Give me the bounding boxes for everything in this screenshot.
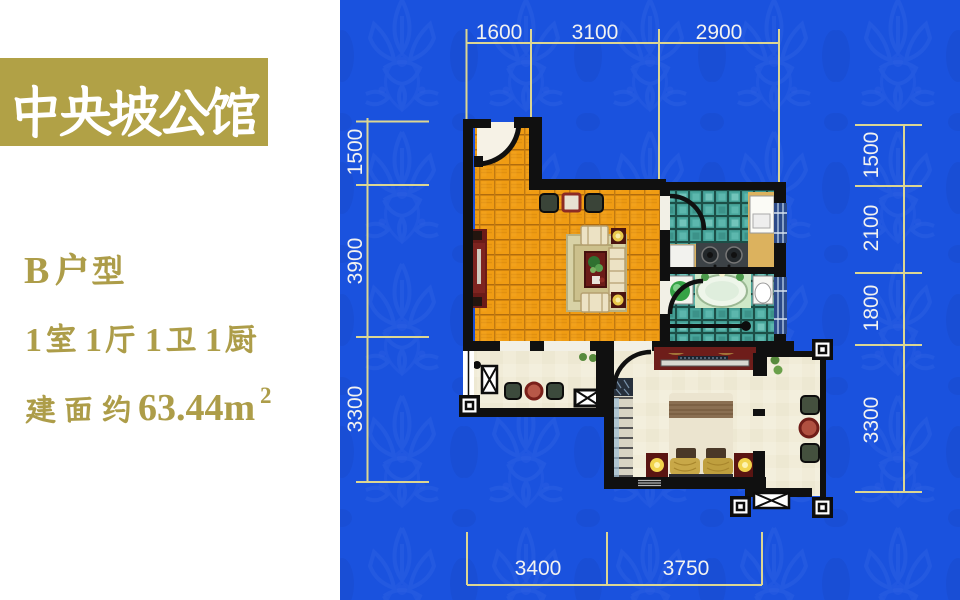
- svg-text:2100: 2100: [860, 205, 883, 252]
- svg-text:63.44m: 63.44m: [138, 387, 255, 429]
- svg-text:1: 1: [145, 322, 162, 359]
- svg-text:1: 1: [85, 322, 102, 359]
- svg-text:3300: 3300: [860, 397, 883, 444]
- svg-text:3750: 3750: [663, 557, 710, 580]
- svg-text:3900: 3900: [344, 238, 367, 285]
- svg-text:B: B: [24, 250, 49, 292]
- svg-text:1800: 1800: [860, 285, 883, 332]
- svg-text:1: 1: [25, 322, 42, 359]
- svg-text:1600: 1600: [476, 21, 523, 44]
- svg-text:1: 1: [205, 322, 222, 359]
- svg-text:3100: 3100: [572, 21, 619, 44]
- svg-text:3300: 3300: [344, 386, 367, 433]
- svg-text:2: 2: [260, 383, 272, 408]
- svg-text:3400: 3400: [515, 557, 562, 580]
- svg-text:1500: 1500: [860, 132, 883, 179]
- svg-text:2900: 2900: [696, 21, 743, 44]
- svg-text:1500: 1500: [344, 129, 367, 176]
